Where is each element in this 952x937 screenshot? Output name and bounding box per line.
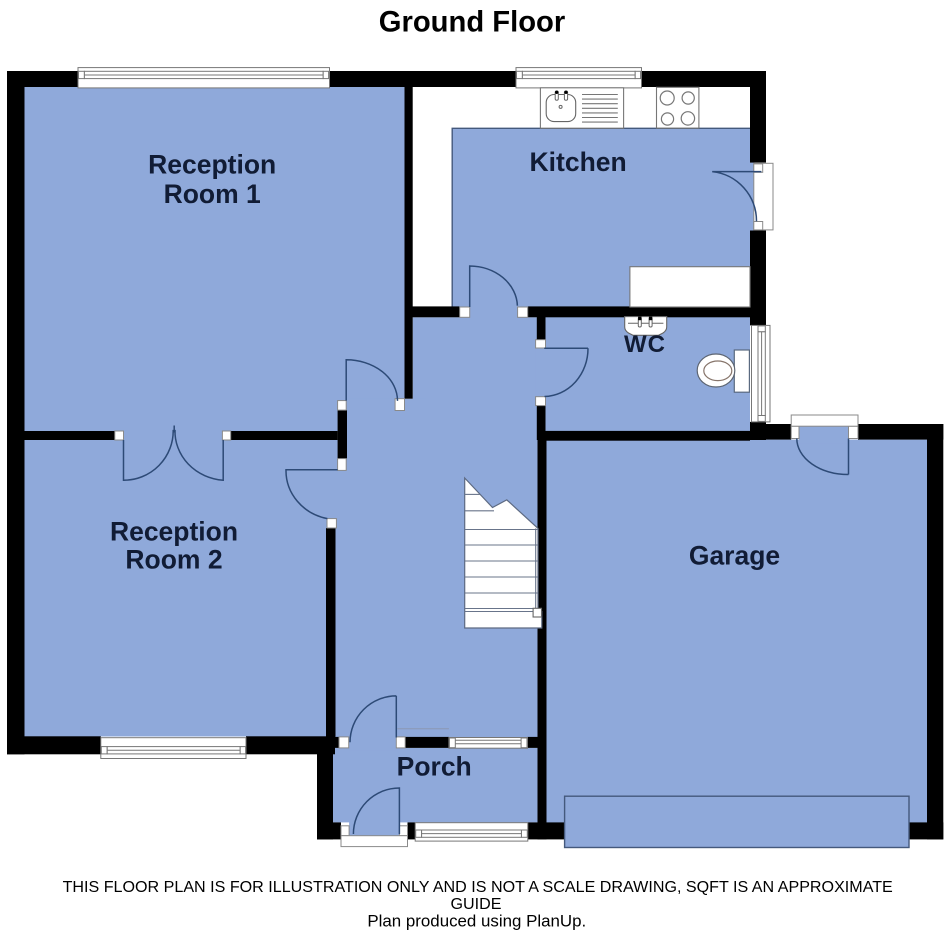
- svg-text:Reception: Reception: [148, 150, 276, 180]
- svg-text:THIS FLOOR PLAN IS FOR ILLUSTR: THIS FLOOR PLAN IS FOR ILLUSTRATION ONLY…: [63, 878, 893, 896]
- svg-text:Garage: Garage: [689, 541, 780, 571]
- svg-text:WC: WC: [624, 331, 666, 358]
- svg-text:Room 1: Room 1: [164, 179, 261, 209]
- svg-text:Plan produced using PlanUp.: Plan produced using PlanUp.: [367, 911, 586, 930]
- svg-text:Porch: Porch: [397, 752, 472, 782]
- svg-text:Room 2: Room 2: [125, 544, 222, 574]
- svg-text:Kitchen: Kitchen: [530, 147, 627, 177]
- svg-text:Ground Floor: Ground Floor: [379, 7, 565, 39]
- svg-text:Reception: Reception: [110, 517, 238, 547]
